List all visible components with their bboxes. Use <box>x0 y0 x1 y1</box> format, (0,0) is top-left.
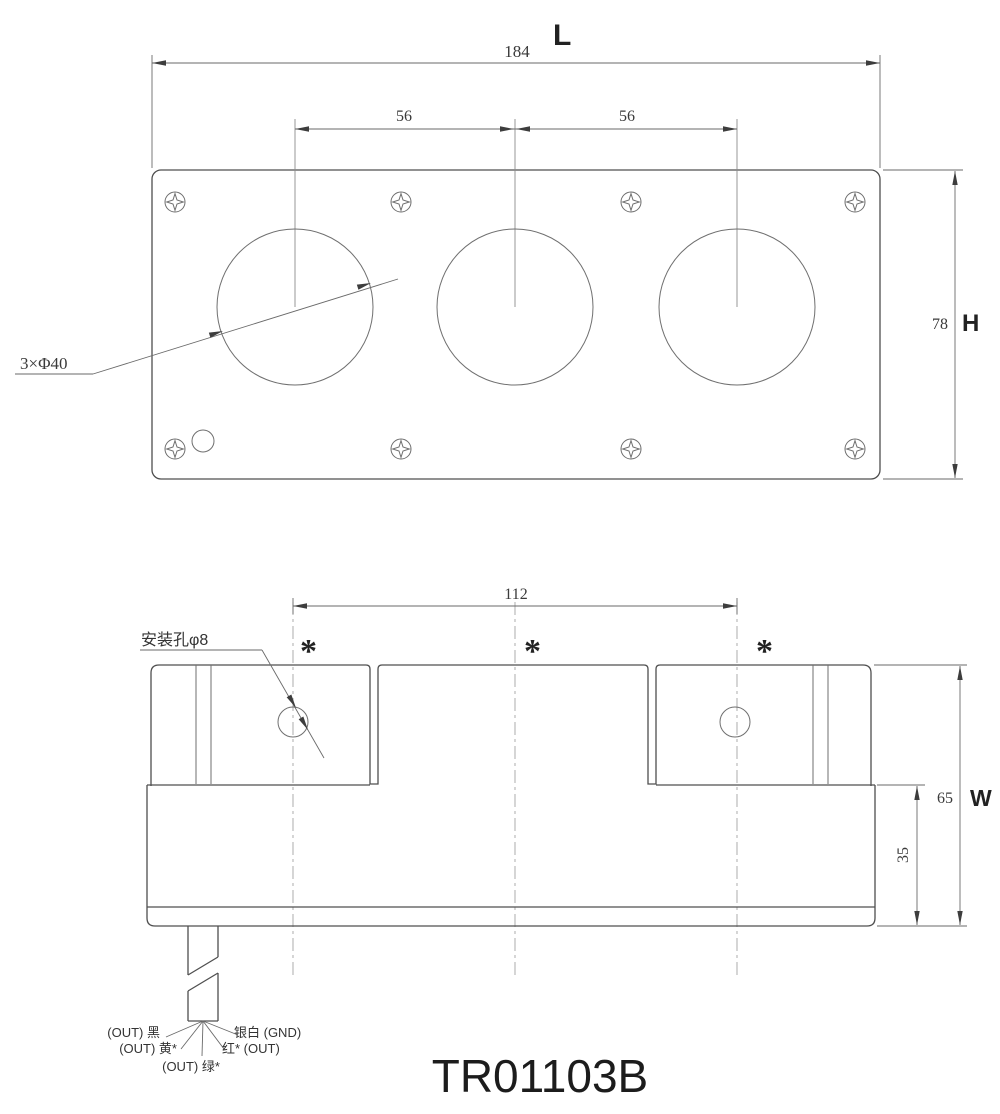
screw-icon <box>165 192 185 212</box>
hole-callout-leader <box>15 279 398 374</box>
groove-lines <box>196 665 828 784</box>
mount-callout-leader <box>140 650 324 758</box>
body-lower-outline <box>147 785 875 926</box>
dim-height-78 <box>883 170 963 479</box>
mounting-hole-right <box>720 707 750 737</box>
wire-label-yellow: (OUT) 黄* <box>119 1041 177 1056</box>
side-view: 安装孔φ8 * * * 112 65 W <box>107 586 992 1074</box>
dim-length-letter: L <box>553 19 571 52</box>
screw-icon <box>391 439 411 459</box>
wire-label-silver: 银白 (GND) <box>234 1025 301 1040</box>
screw-icon <box>165 439 185 459</box>
screw-icon <box>391 192 411 212</box>
screw-icon <box>845 192 865 212</box>
technical-drawing-page: 3×Φ40 184 L 56 56 78 H <box>0 0 1000 1114</box>
body-upper-outline <box>151 665 871 786</box>
wire-label-red: 红* (OUT) <box>222 1041 280 1056</box>
dim-mount-spacing-value: 112 <box>504 586 527 603</box>
dim-width-65 <box>874 665 967 926</box>
dim-height-value: 78 <box>932 316 948 333</box>
dim-length-184 <box>152 55 880 168</box>
phase-marker-3: * <box>756 633 773 670</box>
dim-base-value: 35 <box>895 847 912 863</box>
phase-marker-2: * <box>524 633 541 670</box>
wire-label-green: (OUT) 绿* <box>162 1059 220 1074</box>
hole-callout-label: 3×Φ40 <box>20 354 68 373</box>
dim-spacing-56 <box>295 126 737 131</box>
cable <box>188 926 218 1021</box>
dim-length-value: 184 <box>504 42 530 61</box>
part-number-title: TR01103B <box>432 1050 649 1102</box>
dim-spacing-left-value: 56 <box>396 108 412 125</box>
phase-marker-1: * <box>300 633 317 670</box>
wire-exit-hole <box>192 430 214 452</box>
mount-callout-label: 安装孔φ8 <box>141 631 208 649</box>
dim-spacing-right-value: 56 <box>619 108 635 125</box>
wire-label-black: (OUT) 黑 <box>107 1025 160 1040</box>
dim-height-letter: H <box>962 310 979 337</box>
screw-icon <box>621 192 641 212</box>
dim-width-letter: W <box>970 785 992 811</box>
dim-width-value: 65 <box>937 790 953 807</box>
screw-icon <box>845 439 865 459</box>
drawing-canvas: 3×Φ40 184 L 56 56 78 H <box>0 0 1000 1114</box>
faceplate-outline <box>152 170 880 479</box>
screw-icon <box>621 439 641 459</box>
top-view: 3×Φ40 184 L 56 56 78 H <box>15 19 979 479</box>
